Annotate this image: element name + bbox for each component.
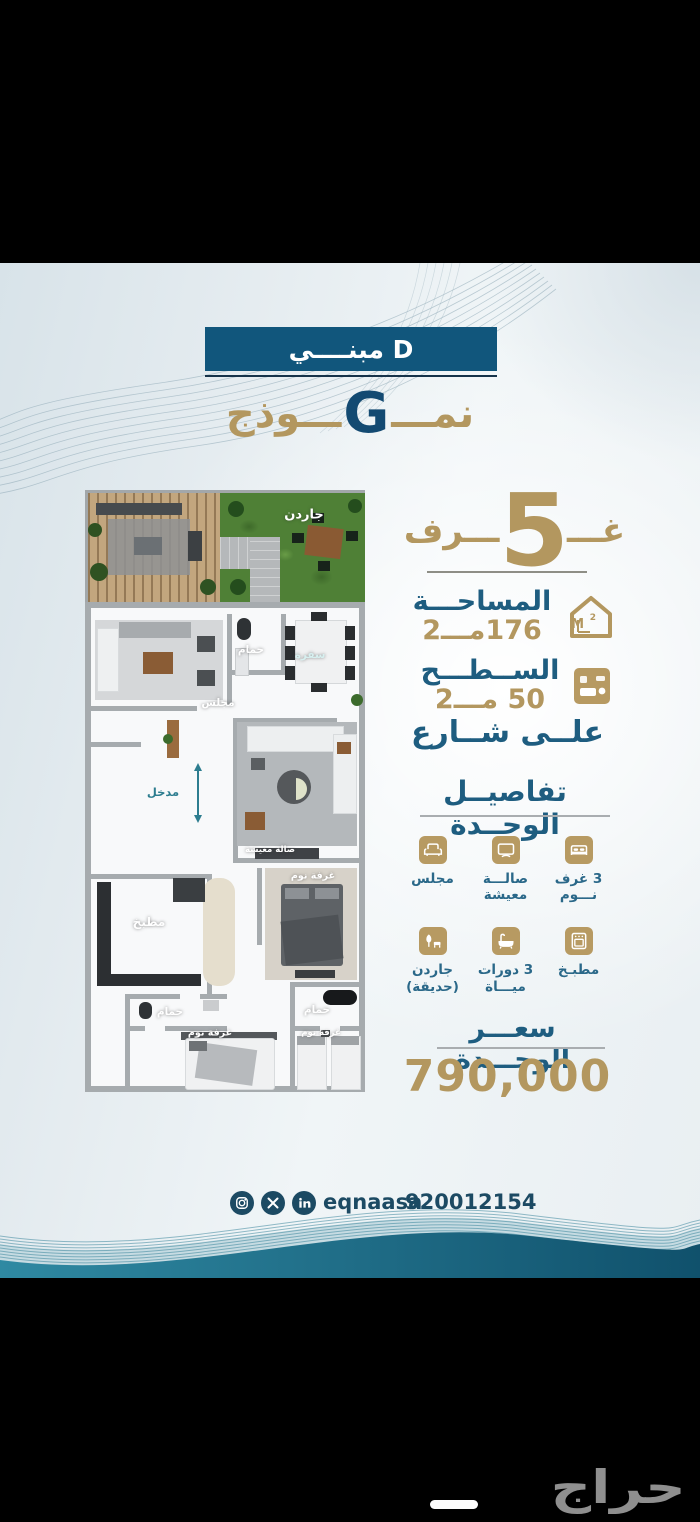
hall-runner <box>203 878 235 986</box>
garden-chair <box>346 531 358 541</box>
garden-chair <box>292 533 304 543</box>
rooms-number: 5 <box>499 495 567 567</box>
wall <box>227 614 232 706</box>
detail-bathrooms: 3 دورات ميـــاة <box>471 917 540 994</box>
wall <box>257 868 262 945</box>
dining-chair <box>311 612 327 621</box>
detail-label: جاردن (حديقة) <box>406 962 459 994</box>
majlis-label: مجلس <box>201 697 234 709</box>
wall <box>200 994 227 999</box>
watermark-dash <box>430 1500 478 1509</box>
majlis-sofa <box>97 628 119 692</box>
kitchen-counter <box>97 882 111 982</box>
pergola-deck <box>88 493 220 605</box>
pouf <box>245 812 265 830</box>
wall <box>125 994 180 999</box>
garden-label: جاردن <box>284 508 324 523</box>
deck-table <box>134 537 162 555</box>
bath-icon <box>492 927 520 955</box>
garden-table <box>304 525 343 559</box>
oven-icon <box>565 927 593 955</box>
majlis-table <box>143 652 173 674</box>
price-value: 790,000 <box>400 1051 615 1102</box>
deck-bush <box>90 563 108 581</box>
wall <box>290 982 295 1086</box>
bedroom-label: غرفة نوم <box>301 1028 341 1038</box>
kitchen-label: مطبخ <box>133 915 166 929</box>
deck-sofa <box>96 503 182 515</box>
divider <box>427 571 587 573</box>
area-label: المساحـــة <box>408 588 556 616</box>
living-sofa <box>247 726 344 752</box>
wall <box>91 706 197 711</box>
detail-majlis: مجلس <box>398 826 467 903</box>
dining-chair <box>345 626 355 640</box>
bedroom-label: غرفة نوم <box>188 1028 232 1039</box>
entrance-label: مدخل <box>147 785 179 799</box>
detail-kitchen: مطبـخ <box>544 917 613 994</box>
armchair-icon <box>419 836 447 864</box>
pillow <box>189 1041 207 1051</box>
bench <box>295 970 335 978</box>
wall <box>340 1026 359 1031</box>
dining-chair <box>285 666 295 680</box>
wall <box>290 982 359 987</box>
detail-living: صالـــة معيشة <box>471 826 540 903</box>
bedroom-label: غرفة نوم <box>291 871 335 882</box>
rooms-suffix: ـــرف <box>404 514 500 548</box>
palm-tree <box>228 501 244 517</box>
roof-row: الســطـــح 50 مـــ2 <box>418 655 614 717</box>
bathtub <box>323 990 357 1005</box>
bath-label: حمام <box>304 1004 330 1016</box>
dining-chair <box>345 646 355 660</box>
divider <box>420 815 610 817</box>
rooms-prefix: غـــ <box>567 514 625 548</box>
dining-chair <box>285 626 295 640</box>
model-letter: G <box>343 386 389 442</box>
garden-area: جاردن <box>85 490 365 608</box>
phone-number: 920012154 <box>405 1190 537 1214</box>
palm-tree <box>230 579 246 595</box>
floor-plan: جاردن <box>85 490 365 1092</box>
screenshot-stage: مبنــــي D نمـــ G ـــوذج <box>0 0 700 1522</box>
detail-bedrooms: 3 غرف نـــوم <box>544 826 613 903</box>
bottom-wave <box>0 1158 700 1278</box>
area-row: M 2 المساحـــة 176مـــ2 <box>408 581 618 653</box>
toilet <box>237 618 251 640</box>
linkedin-icon[interactable] <box>292 1191 316 1215</box>
haraj-watermark: حراج <box>551 1460 686 1514</box>
wall <box>281 614 286 670</box>
plant <box>351 694 363 706</box>
x-icon[interactable] <box>261 1191 285 1215</box>
wall <box>125 1026 145 1031</box>
tv-icon <box>492 836 520 864</box>
dining-chair <box>345 666 355 680</box>
detail-label: مجلس <box>411 871 454 887</box>
bath-label: حمام <box>157 1006 183 1018</box>
building-label: مبنــــي D <box>289 335 414 364</box>
bed-icon <box>565 836 593 864</box>
living-label: صالة معيشة <box>245 845 295 855</box>
detail-label: 3 غرف نـــوم <box>555 871 602 903</box>
roof-value: 50 مـــ2 <box>418 685 562 715</box>
instagram-icon[interactable] <box>230 1191 254 1215</box>
wall <box>91 742 141 747</box>
kitchen-island <box>173 878 205 902</box>
garden-path <box>250 537 280 605</box>
dining-chair <box>285 646 295 660</box>
dining-chair <box>311 683 327 692</box>
pouf <box>251 758 265 770</box>
majlis-sofa <box>119 622 191 638</box>
street-note: علــى شــارع <box>400 715 615 750</box>
garden-icon <box>419 927 447 955</box>
bath-label: حمام <box>238 644 264 656</box>
palm-tree <box>348 499 362 513</box>
cushion <box>337 742 351 754</box>
roof-icon <box>570 664 614 708</box>
building-banner: مبنــــي D <box>205 327 497 371</box>
detail-garden: جاردن (حديقة) <box>398 917 467 994</box>
detail-label: مطبـخ <box>558 962 599 978</box>
deck-chair <box>188 531 202 561</box>
plant <box>163 734 173 744</box>
area-value: 176مـــ2 <box>408 616 556 646</box>
detail-label: 3 دورات ميـــاة <box>478 962 533 994</box>
detail-label: صالـــة معيشة <box>483 871 528 903</box>
deck-bush <box>200 579 216 595</box>
rooms-count: غـــ 5 ـــرف <box>412 485 617 577</box>
kitchen-counter <box>97 974 201 986</box>
pillow <box>315 888 339 899</box>
majlis-armchair <box>197 636 215 652</box>
model-prefix: نمـــ <box>391 394 474 434</box>
toilet <box>139 1002 152 1019</box>
details-grid: 3 غرف نـــوم صالـــة معيشة مجلس مطبـخ <box>398 826 613 995</box>
house-area-icon: M 2 <box>564 590 618 644</box>
social-icons <box>230 1191 316 1215</box>
blanket <box>281 915 344 966</box>
deck-bush <box>88 523 102 537</box>
sink <box>203 1000 219 1011</box>
divider <box>437 1047 605 1049</box>
garden-chair <box>318 561 330 571</box>
model-suffix: ـــوذج <box>226 394 341 434</box>
majlis-armchair <box>197 670 215 686</box>
wall <box>125 994 130 1086</box>
poster: مبنــــي D نمـــ G ـــوذج <box>0 263 700 1278</box>
svg-text:2: 2 <box>590 613 596 623</box>
model-title: نمـــ G ـــوذج <box>155 375 545 453</box>
dining-label: سفرة <box>295 649 326 661</box>
roof-label: الســطـــح <box>418 657 562 685</box>
pillow <box>285 888 309 899</box>
